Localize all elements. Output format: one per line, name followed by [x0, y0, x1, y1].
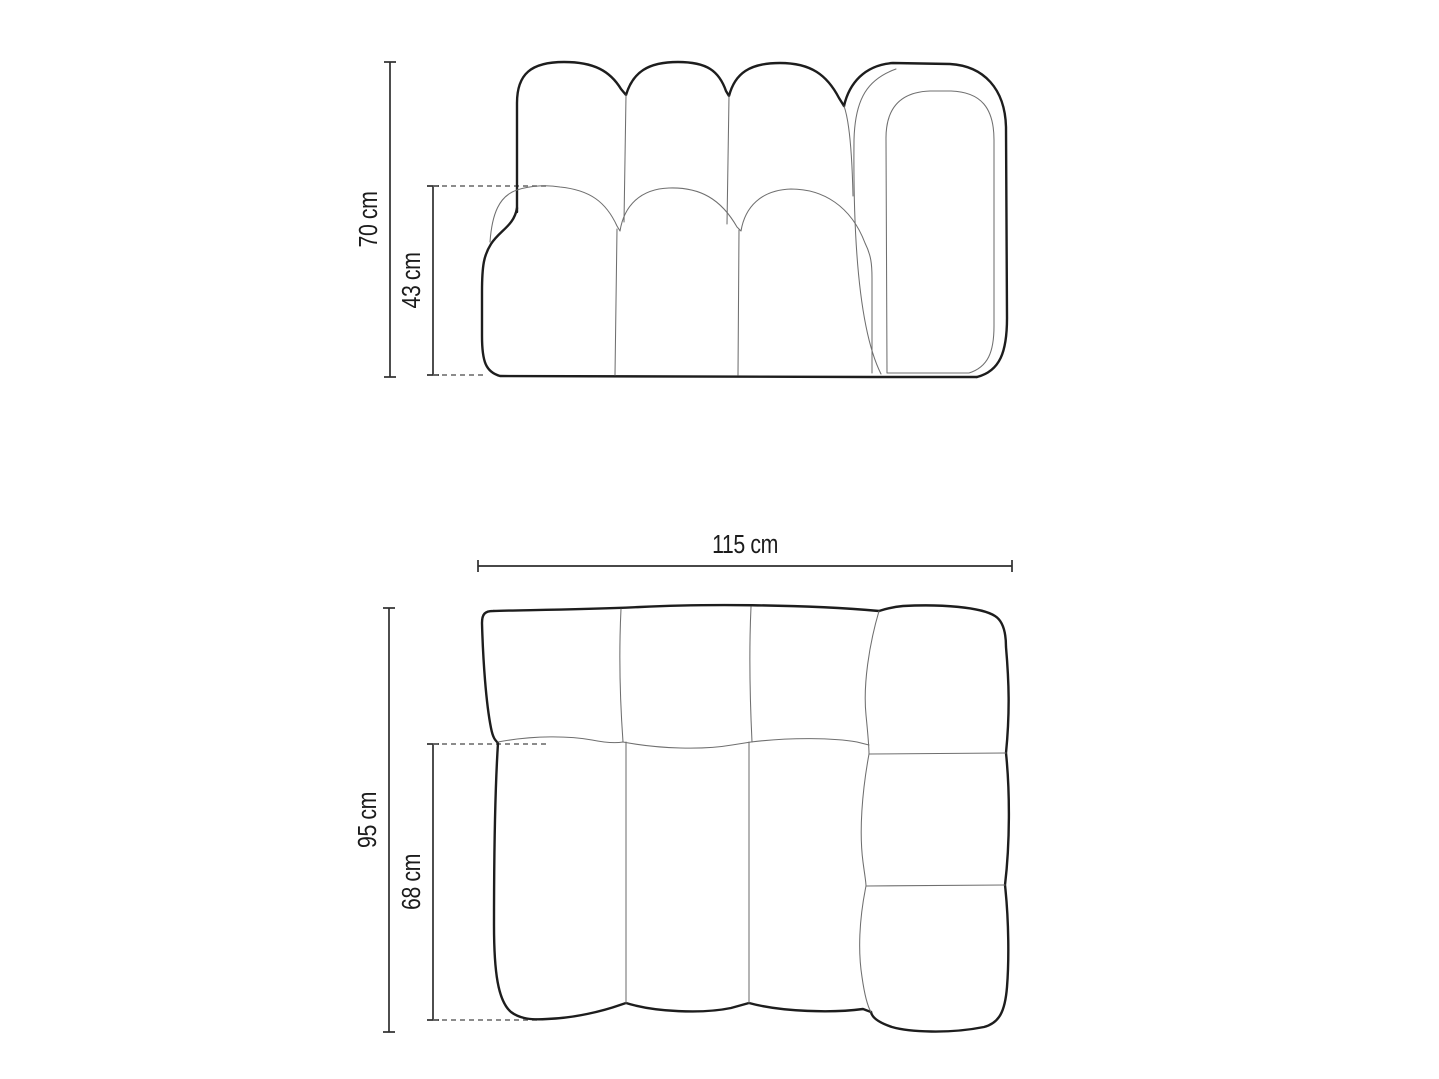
front-total-height-dimension: 70 cm [354, 62, 396, 377]
top-total-width-label: 115 cm [712, 530, 778, 560]
top-back-cushion-seam [750, 607, 752, 742]
top-body-outline [482, 605, 879, 1019]
top-armrest-segment-seam [866, 885, 1005, 886]
front-armrest-outline [844, 63, 1007, 377]
top-seat-depth-label: 68 cm [397, 854, 427, 910]
top-armrest-inner-seam [860, 611, 879, 1012]
top-armrest-segment-seam [869, 753, 1006, 754]
top-armrest-outline [871, 605, 1009, 1031]
front-armrest-inner-panel [886, 91, 994, 373]
front-seat-cushion-seam [615, 229, 617, 375]
top-total-depth-label: 95 cm [353, 792, 383, 848]
front-view-drawing: 70 cm 43 cm [354, 62, 1007, 377]
diagram-canvas: 70 cm 43 cm [0, 0, 1439, 1079]
top-back-cushion-seam [620, 609, 623, 742]
top-backrest-seat-seam [498, 737, 869, 748]
top-total-depth-dimension: 95 cm [353, 608, 395, 1032]
front-seat-height-label: 43 cm [397, 253, 427, 309]
front-back-cushion-seam [727, 96, 729, 224]
sofa-dimension-diagram: 70 cm 43 cm [0, 0, 1439, 1079]
top-view-drawing: 115 cm 95 cm 68 cm [353, 530, 1012, 1032]
front-back-cushion-seam [844, 106, 853, 196]
top-total-width-dimension: 115 cm [478, 530, 1012, 572]
top-seat-depth-dimension: 68 cm [397, 744, 439, 1020]
front-seat-cushion-seam [738, 230, 739, 375]
front-seat-height-dimension: 43 cm [397, 186, 439, 375]
front-seat-cushions-outline [490, 186, 872, 373]
front-back-cushion-seam [624, 95, 626, 222]
front-total-height-label: 70 cm [354, 192, 384, 248]
front-base-outline [482, 208, 977, 377]
